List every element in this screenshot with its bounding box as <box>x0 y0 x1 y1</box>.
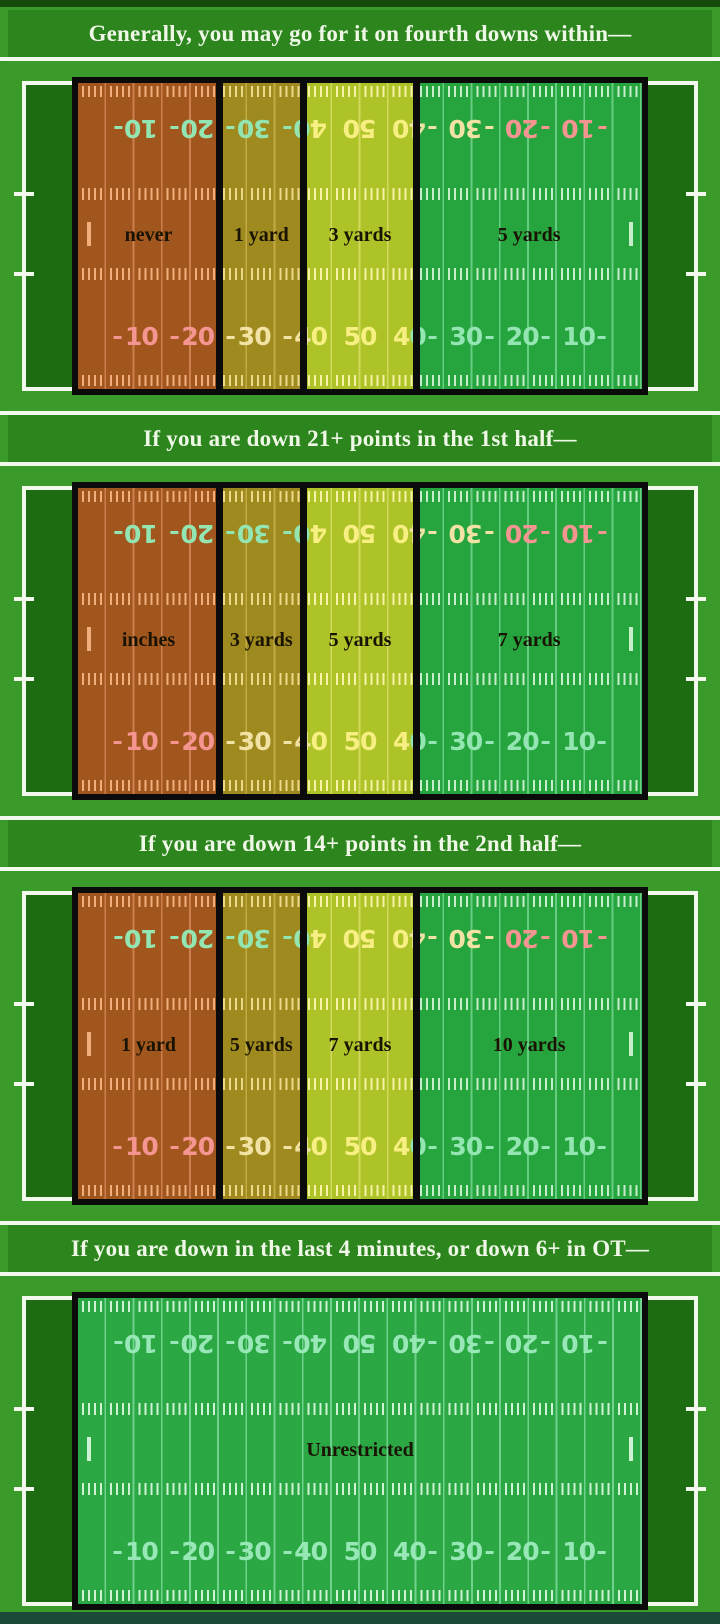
yard-number: 20 <box>506 1133 553 1161</box>
yard-number: 30 <box>449 728 496 756</box>
direction-tick <box>283 741 291 744</box>
hash-marks-row <box>304 673 417 685</box>
yard-digit: 0 <box>506 519 522 547</box>
yard-digit: 4 <box>393 1133 409 1161</box>
separator-line <box>0 867 720 871</box>
yard-number: 40 <box>393 1538 440 1566</box>
yard-digit: 2 <box>522 924 538 952</box>
yard-digit: 0 <box>562 924 578 952</box>
yard-number: 10 <box>111 1538 158 1566</box>
yard-number: 20 <box>506 519 553 547</box>
football-field: never1 yard3 yards5 yards102030405040302… <box>0 75 720 397</box>
yard-digit: 1 <box>579 114 595 142</box>
yard-digit: 4 <box>311 924 327 952</box>
hash-marks-row <box>78 375 219 386</box>
yard-digit: 5 <box>344 323 360 351</box>
direction-tick <box>227 336 235 339</box>
rule-header: If you are down 21+ points in the 1st ha… <box>8 415 712 462</box>
yard-digit: 4 <box>393 728 409 756</box>
yard-digit: 3 <box>254 519 270 547</box>
yard-digit: 3 <box>449 1538 465 1566</box>
goal-line-mark <box>87 1437 91 1461</box>
direction-tick <box>429 532 437 535</box>
yard-number: 30 <box>224 728 271 756</box>
direction-tick <box>598 1146 606 1149</box>
yard-numbers-row: 102030405040302010 <box>78 1329 642 1357</box>
goal-line-mark <box>629 222 633 246</box>
zone-label: 1 yard <box>121 1031 176 1059</box>
yard-digit: 0 <box>125 1329 141 1357</box>
hash-marks-row <box>304 780 417 791</box>
direction-tick <box>114 741 122 744</box>
yard-digit: 4 <box>311 1329 327 1357</box>
hash-marks-row <box>304 188 417 200</box>
yard-number: 40 <box>393 1329 440 1357</box>
yard-digit: 0 <box>579 728 595 756</box>
fourth-down-infographic: Generally, you may go for it on fourth d… <box>0 0 720 1624</box>
yard-numbers-row: 102030405040302010 <box>78 1538 642 1566</box>
zone-label: 5 yards <box>329 626 392 654</box>
yard-digit: 3 <box>466 114 482 142</box>
yard-digit: 5 <box>360 1329 376 1357</box>
sideline-hash-tick <box>686 272 706 276</box>
direction-tick <box>429 937 437 940</box>
yard-digit: 0 <box>579 1133 595 1161</box>
direction-tick <box>598 1551 606 1554</box>
direction-tick <box>598 1342 606 1345</box>
bottom-border-strip <box>0 1612 720 1624</box>
yard-digit: 0 <box>562 519 578 547</box>
yard-digit: 4 <box>393 1538 409 1566</box>
hash-marks-row <box>416 491 642 502</box>
direction-tick <box>170 1146 178 1149</box>
sideline-hash-tick <box>14 1082 34 1086</box>
zone-label: Unrestricted <box>306 1436 413 1464</box>
yard-digit: 3 <box>238 728 254 756</box>
yard-digit: 0 <box>311 1133 327 1161</box>
hash-marks-row <box>304 593 417 605</box>
yard-digit: 0 <box>181 519 197 547</box>
yard-digit: 0 <box>562 114 578 142</box>
yard-number: 40 <box>280 1538 327 1566</box>
separator-line <box>0 462 720 466</box>
yard-digit: 0 <box>238 114 254 142</box>
sideline-hash-tick <box>14 1407 34 1411</box>
hash-marks-row <box>219 491 304 502</box>
yard-digit: 0 <box>506 1329 522 1357</box>
direction-tick <box>283 1551 291 1554</box>
yard-digit: 0 <box>449 1329 465 1357</box>
direction-tick <box>170 937 178 940</box>
hash-marks-row <box>416 593 642 605</box>
yard-number: 30 <box>224 114 271 142</box>
yard-digit: 3 <box>238 1133 254 1161</box>
yard-digit: 1 <box>562 728 578 756</box>
yard-digit: 4 <box>311 114 327 142</box>
yard-digit: 0 <box>198 323 214 351</box>
yard-digit: 1 <box>579 1329 595 1357</box>
yard-number: 30 <box>449 519 496 547</box>
hash-marks-row <box>416 673 642 685</box>
yard-number: 10 <box>111 114 158 142</box>
yard-digit: 0 <box>344 519 360 547</box>
yard-numbers-row: 102030405040302010 <box>78 323 642 351</box>
direction-tick <box>170 741 178 744</box>
rule-header: If you are down in the last 4 minutes, o… <box>8 1225 712 1272</box>
yard-digit: 0 <box>506 114 522 142</box>
yard-number: 20 <box>506 323 553 351</box>
zone-label: never <box>125 221 173 249</box>
yard-digit: 0 <box>409 1538 425 1566</box>
rule-section-down21-1st-half: If you are down 21+ points in the 1st ha… <box>0 411 720 802</box>
zone-strip: 1 yard5 yards7 yards10 yards102030405040… <box>72 887 648 1205</box>
direction-tick <box>429 1551 437 1554</box>
yard-number: 20 <box>167 1133 214 1161</box>
direction-tick <box>227 1551 235 1554</box>
yard-digit: 1 <box>141 114 157 142</box>
yard-digit: 0 <box>579 1538 595 1566</box>
yard-digit: 0 <box>254 1538 270 1566</box>
yard-number: 30 <box>224 1133 271 1161</box>
yard-digit: 4 <box>294 1538 310 1566</box>
yard-number: 50 <box>344 924 377 952</box>
rule-header-text: If you are down 21+ points in the 1st ha… <box>143 426 576 452</box>
direction-tick <box>429 741 437 744</box>
goal-line-mark <box>87 222 91 246</box>
yard-number: 50 <box>344 114 377 142</box>
yard-numbers-row: 102030405040302010 <box>78 114 642 142</box>
yard-digit: 0 <box>198 728 214 756</box>
hash-marks-row <box>304 998 417 1010</box>
yard-numbers-row: 102030405040302010 <box>78 924 642 952</box>
yard-number: 50 <box>344 728 377 756</box>
hash-marks-row <box>78 896 219 907</box>
yard-number: 30 <box>449 323 496 351</box>
football-field: Unrestricted1020304050403020101020304050… <box>0 1290 720 1612</box>
yard-digit: 2 <box>181 1538 197 1566</box>
yard-number: 10 <box>562 1133 609 1161</box>
direction-tick <box>227 1146 235 1149</box>
hash-marks-row <box>219 998 304 1010</box>
direction-tick <box>485 532 493 535</box>
yard-digit: 2 <box>522 114 538 142</box>
yard-number: 30 <box>449 924 496 952</box>
yard-digit: 0 <box>449 924 465 952</box>
yard-number: 50 <box>344 1133 377 1161</box>
yard-digit: 2 <box>198 519 214 547</box>
yard-number: 10 <box>562 114 609 142</box>
hash-marks-row <box>416 188 642 200</box>
yard-number: 30 <box>224 1329 271 1357</box>
hash-marks-row <box>219 1185 304 1196</box>
yard-numbers-row: 102030405040302010 <box>78 1133 642 1161</box>
goal-line-mark <box>87 1032 91 1056</box>
hash-marks-row <box>416 375 642 386</box>
yard-digit: 5 <box>344 1133 360 1161</box>
hash-marks-row <box>304 375 417 386</box>
hash-marks-row <box>304 86 417 97</box>
sideline-hash-tick <box>686 677 706 681</box>
hash-marks-row <box>416 268 642 280</box>
yard-digit: 2 <box>181 1133 197 1161</box>
direction-tick <box>170 127 178 130</box>
zone-label: 5 yards <box>498 221 561 249</box>
yard-digit: 0 <box>360 728 376 756</box>
hash-marks-row <box>304 1078 417 1090</box>
zone-divider <box>216 482 223 800</box>
direction-tick <box>542 336 550 339</box>
yard-digit: 0 <box>522 1133 538 1161</box>
hash-marks-row <box>304 896 417 907</box>
hash-marks-row <box>416 86 642 97</box>
direction-tick <box>114 937 122 940</box>
rule-section-down14-2nd-half: If you are down 14+ points in the 2nd ha… <box>0 816 720 1207</box>
yard-digit: 3 <box>254 924 270 952</box>
zone-divider <box>300 887 307 1205</box>
yard-digit: 0 <box>466 323 482 351</box>
direction-tick <box>485 741 493 744</box>
direction-tick <box>542 1342 550 1345</box>
direction-tick <box>429 1342 437 1345</box>
yard-digit: 3 <box>238 323 254 351</box>
hash-marks-row <box>78 593 219 605</box>
hash-marks-row <box>78 998 219 1010</box>
yard-digit: 0 <box>449 114 465 142</box>
yard-digit: 4 <box>409 1329 425 1357</box>
hash-marks-row <box>78 491 219 502</box>
zone-label: 3 yards <box>329 221 392 249</box>
separator-line <box>0 57 720 61</box>
yard-digit: 1 <box>125 323 141 351</box>
yard-number: 10 <box>111 323 158 351</box>
zone-divider <box>413 482 420 800</box>
yard-digit: 0 <box>360 1538 376 1566</box>
hash-marks-row <box>78 1301 642 1312</box>
zone-divider <box>413 887 420 1205</box>
rule-header: Generally, you may go for it on fourth d… <box>8 10 712 57</box>
hash-marks-row <box>78 1483 642 1495</box>
sideline-hash-tick <box>686 1082 706 1086</box>
yard-digit: 0 <box>522 323 538 351</box>
yard-digit: 5 <box>360 114 376 142</box>
yard-digit: 0 <box>181 924 197 952</box>
yard-digit: 0 <box>449 519 465 547</box>
direction-tick <box>283 336 291 339</box>
yard-number: 10 <box>111 728 158 756</box>
yard-digit: 0 <box>254 1133 270 1161</box>
yard-digit: 1 <box>562 1538 578 1566</box>
yard-digit: 1 <box>141 924 157 952</box>
yard-digit: 2 <box>506 1133 522 1161</box>
rule-header-text: If you are down 14+ points in the 2nd ha… <box>139 831 581 857</box>
direction-tick <box>485 1342 493 1345</box>
yard-number: 30 <box>449 1538 496 1566</box>
hash-marks-row <box>78 780 219 791</box>
hash-marks-row <box>416 1185 642 1196</box>
direction-tick <box>542 127 550 130</box>
yard-digit: 0 <box>562 1329 578 1357</box>
hash-marks-row <box>78 1078 219 1090</box>
goal-line-mark <box>87 627 91 651</box>
yard-digit: 3 <box>238 1538 254 1566</box>
yard-digit: 0 <box>393 924 409 952</box>
yard-digit: 0 <box>393 114 409 142</box>
zone-strip: never1 yard3 yards5 yards102030405040302… <box>72 77 648 395</box>
yard-digit: 0 <box>238 924 254 952</box>
yard-digit: 0 <box>311 728 327 756</box>
yard-numbers-row: 102030405040302010 <box>78 728 642 756</box>
yard-number: 50 <box>344 323 377 351</box>
yard-digit: 3 <box>254 114 270 142</box>
hash-marks-row <box>219 673 304 685</box>
direction-tick <box>227 127 235 130</box>
yard-digit: 4 <box>311 519 327 547</box>
yard-number: 30 <box>224 1538 271 1566</box>
yard-digit: 2 <box>522 519 538 547</box>
hash-marks-row <box>219 188 304 200</box>
yard-digit: 2 <box>198 1329 214 1357</box>
yard-digit: 0 <box>254 728 270 756</box>
sideline-hash-tick <box>14 1487 34 1491</box>
zone-label: 3 yards <box>230 626 293 654</box>
rule-section-last4min-ot: If you are down in the last 4 minutes, o… <box>0 1221 720 1612</box>
hash-marks-row <box>416 998 642 1010</box>
sideline-hash-tick <box>686 597 706 601</box>
yard-digit: 0 <box>506 924 522 952</box>
direction-tick <box>114 532 122 535</box>
direction-tick <box>114 336 122 339</box>
sideline-hash-tick <box>14 677 34 681</box>
yard-digit: 0 <box>254 323 270 351</box>
direction-tick <box>114 1342 122 1345</box>
sideline-hash-tick <box>686 192 706 196</box>
yard-digit: 0 <box>141 728 157 756</box>
hash-marks-row <box>304 1185 417 1196</box>
hash-marks-row <box>416 896 642 907</box>
yard-number: 50 <box>344 519 377 547</box>
hash-marks-row <box>219 780 304 791</box>
yard-digit: 0 <box>238 519 254 547</box>
yard-digit: 0 <box>311 1538 327 1566</box>
hash-marks-row <box>219 375 304 386</box>
yard-digit: 2 <box>198 924 214 952</box>
yard-digit: 0 <box>181 1329 197 1357</box>
yard-number: 20 <box>506 1329 553 1357</box>
zone-strip: Unrestricted1020304050403020101020304050… <box>72 1292 648 1610</box>
yard-number: 30 <box>224 924 271 952</box>
yard-digit: 0 <box>125 114 141 142</box>
zone-label: 5 yards <box>230 1031 293 1059</box>
direction-tick <box>227 1342 235 1345</box>
direction-tick <box>542 1146 550 1149</box>
rule-header: If you are down 14+ points in the 2nd ha… <box>8 820 712 867</box>
sideline-hash-tick <box>14 192 34 196</box>
top-border-strip <box>0 0 720 7</box>
yard-digit: 0 <box>238 1329 254 1357</box>
yard-number: 30 <box>224 323 271 351</box>
yard-digit: 0 <box>125 519 141 547</box>
yard-numbers-row: 102030405040302010 <box>78 519 642 547</box>
rule-section-general: Generally, you may go for it on fourth d… <box>0 7 720 397</box>
hash-marks-row <box>416 780 642 791</box>
direction-tick <box>283 937 291 940</box>
yard-number: 30 <box>449 1329 496 1357</box>
yard-number: 20 <box>167 1329 214 1357</box>
zone-strip: inches3 yards5 yards7 yards1020304050403… <box>72 482 648 800</box>
yard-digit: 0 <box>522 728 538 756</box>
yard-number: 50 <box>344 1538 377 1566</box>
yard-digit: 3 <box>449 323 465 351</box>
direction-tick <box>485 1146 493 1149</box>
yard-number: 50 <box>344 1329 377 1357</box>
direction-tick <box>542 937 550 940</box>
direction-tick <box>485 937 493 940</box>
yard-digit: 4 <box>393 323 409 351</box>
yard-digit: 3 <box>466 924 482 952</box>
yard-number: 10 <box>562 1538 609 1566</box>
direction-tick <box>542 532 550 535</box>
yard-digit: 0 <box>141 1133 157 1161</box>
yard-digit: 5 <box>344 728 360 756</box>
direction-tick <box>283 127 291 130</box>
direction-tick <box>542 1551 550 1554</box>
yard-number: 10 <box>111 1133 158 1161</box>
zone-divider <box>413 77 420 395</box>
yard-number: 10 <box>562 728 609 756</box>
football-field: inches3 yards5 yards7 yards1020304050403… <box>0 480 720 802</box>
yard-digit: 0 <box>579 323 595 351</box>
zone-label: 7 yards <box>498 626 561 654</box>
yard-digit: 0 <box>294 1329 310 1357</box>
yard-digit: 0 <box>198 1133 214 1161</box>
direction-tick <box>114 127 122 130</box>
yard-digit: 0 <box>360 323 376 351</box>
direction-tick <box>283 1342 291 1345</box>
goal-line-mark <box>629 1437 633 1461</box>
direction-tick <box>429 1146 437 1149</box>
yard-digit: 1 <box>141 1329 157 1357</box>
sideline-hash-tick <box>686 1002 706 1006</box>
zone-divider <box>216 887 223 1205</box>
direction-tick <box>114 1146 122 1149</box>
hash-marks-row <box>78 268 219 280</box>
yard-digit: 3 <box>466 519 482 547</box>
direction-tick <box>598 127 606 130</box>
yard-digit: 0 <box>198 1538 214 1566</box>
hash-marks-row <box>78 1403 642 1415</box>
yard-digit: 0 <box>393 519 409 547</box>
zone-label: 1 yard <box>234 221 289 249</box>
yard-digit: 3 <box>254 1329 270 1357</box>
direction-tick <box>429 127 437 130</box>
yard-digit: 2 <box>181 728 197 756</box>
yard-number: 20 <box>167 519 214 547</box>
hash-marks-row <box>219 1078 304 1090</box>
yard-digit: 1 <box>141 519 157 547</box>
direction-tick <box>542 741 550 744</box>
yard-digit: 0 <box>393 1329 409 1357</box>
yard-digit: 2 <box>198 114 214 142</box>
rule-header-text: Generally, you may go for it on fourth d… <box>89 21 632 47</box>
yard-digit: 0 <box>466 728 482 756</box>
direction-tick <box>170 1551 178 1554</box>
yard-digit: 0 <box>311 323 327 351</box>
direction-tick <box>227 937 235 940</box>
yard-digit: 0 <box>344 114 360 142</box>
zone-label: 7 yards <box>329 1031 392 1059</box>
hash-marks-row <box>304 491 417 502</box>
yard-digit: 5 <box>360 924 376 952</box>
